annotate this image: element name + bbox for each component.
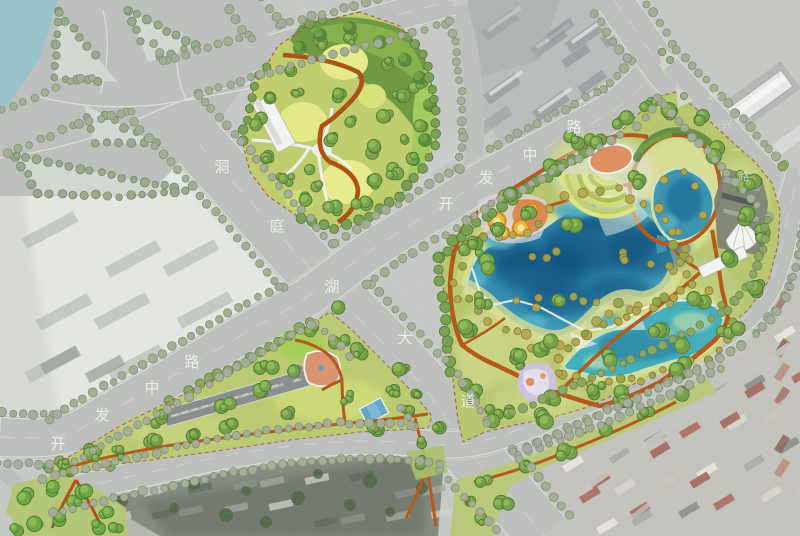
svg-text:路: 路	[184, 354, 199, 371]
svg-text:发: 发	[94, 407, 109, 424]
svg-text:路: 路	[739, 170, 750, 183]
svg-text:中: 中	[522, 147, 537, 164]
svg-text:兴: 兴	[722, 118, 733, 131]
svg-text:洞: 洞	[214, 159, 229, 176]
svg-text:一: 一	[731, 145, 742, 157]
svg-text:道: 道	[460, 393, 475, 410]
svg-text:庭: 庭	[269, 218, 284, 235]
svg-text:大: 大	[397, 330, 412, 347]
svg-text:湖: 湖	[324, 279, 339, 296]
svg-text:开: 开	[50, 436, 65, 453]
svg-text:发: 发	[478, 170, 493, 187]
svg-text:开: 开	[438, 196, 453, 213]
svg-text:路: 路	[566, 119, 581, 136]
svg-text:晓: 晓	[709, 90, 720, 103]
svg-text:中: 中	[144, 380, 159, 397]
